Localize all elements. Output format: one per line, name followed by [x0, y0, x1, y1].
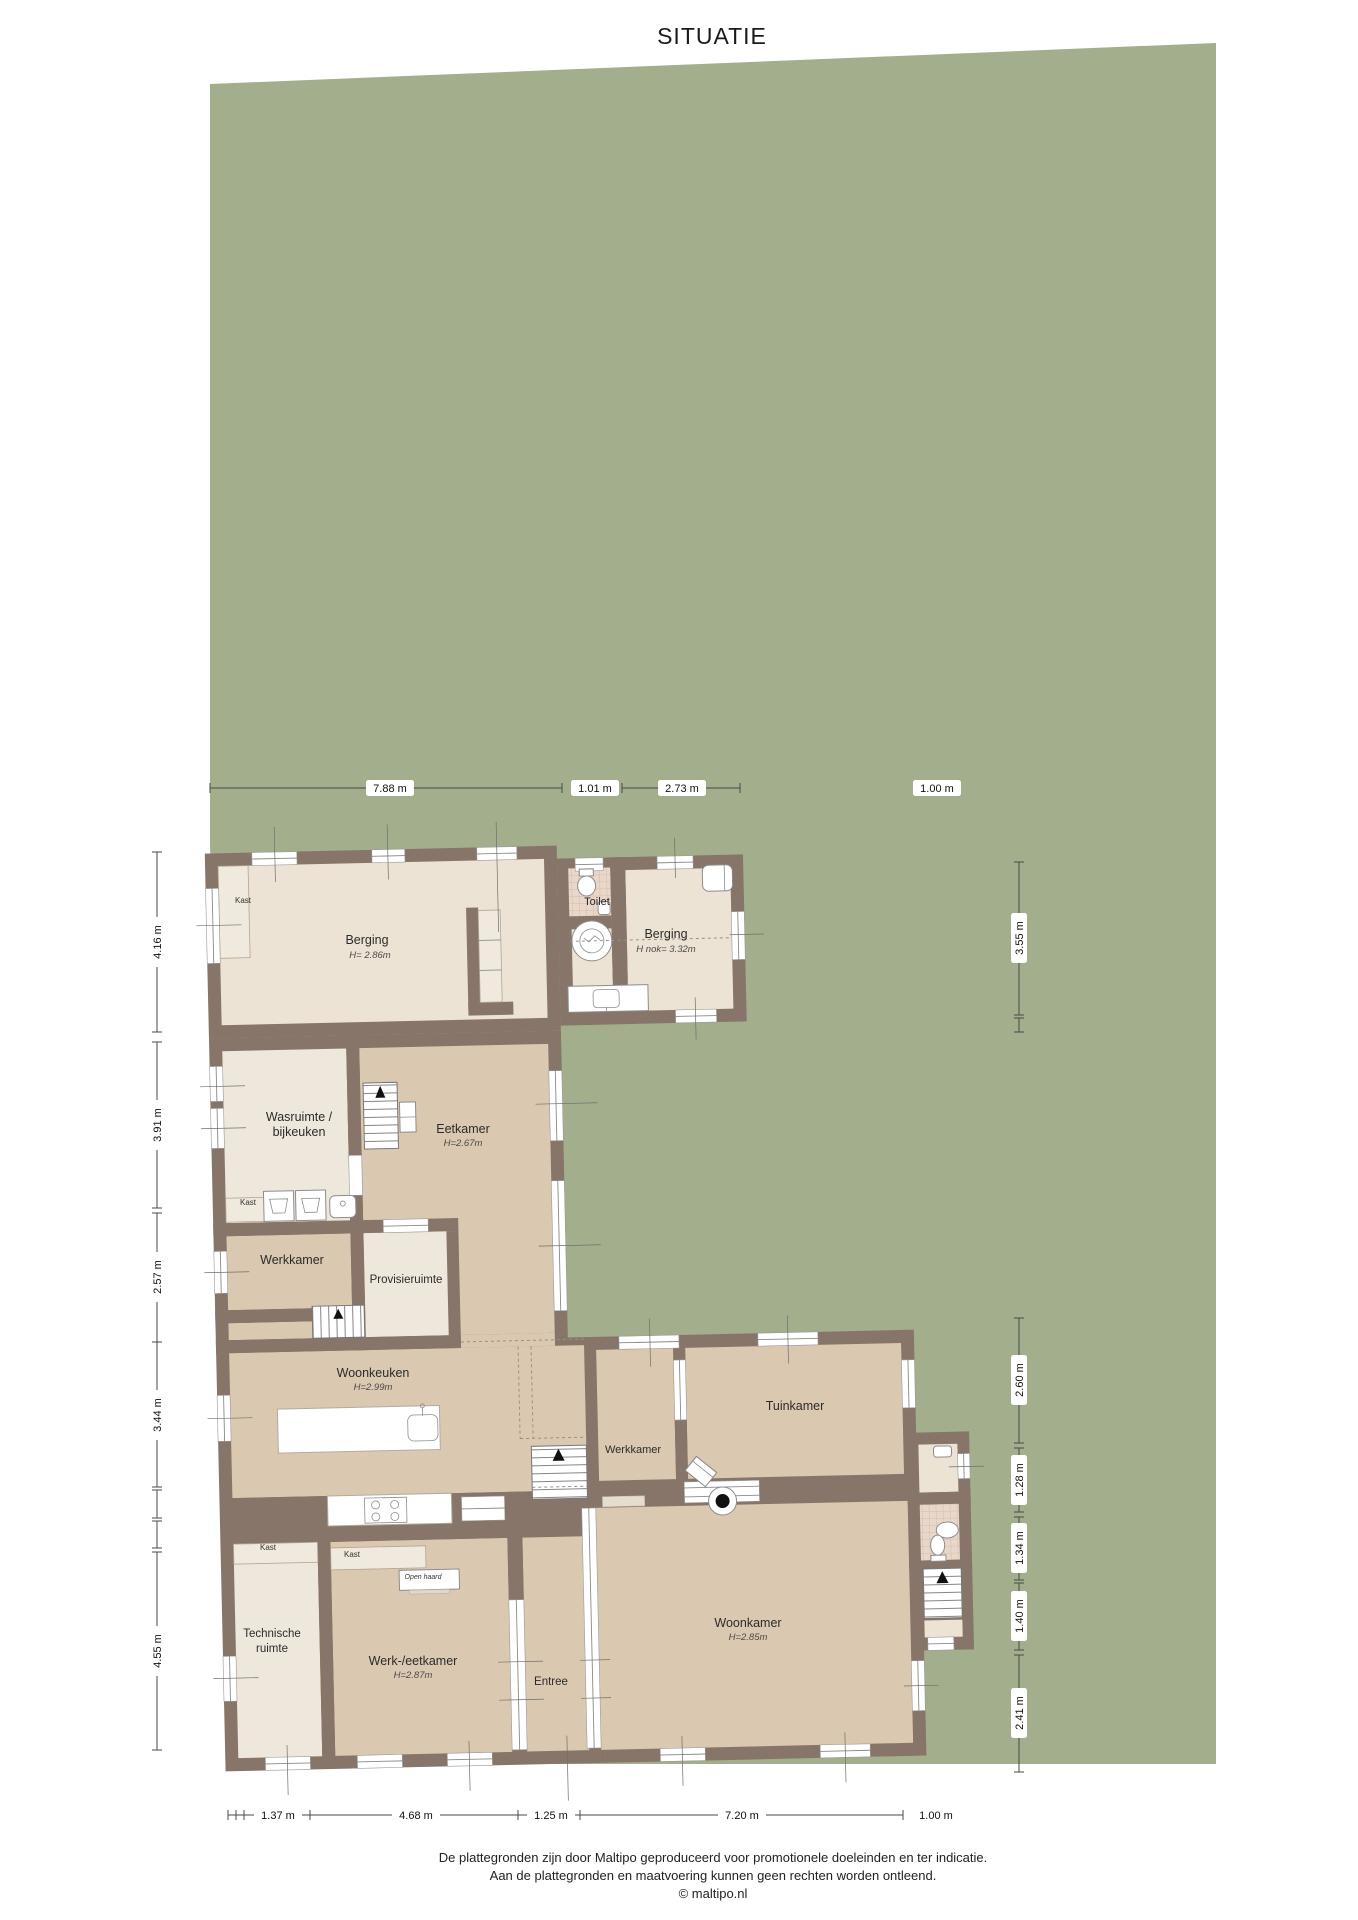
dim-left-2: 2.57 m: [152, 1260, 164, 1294]
dim-top-0: 7.88 m: [373, 783, 407, 795]
dim-left-4: 4.55 m: [152, 1634, 164, 1668]
footer: De plattegronden zijn door Maltipo gepro…: [439, 1850, 988, 1901]
label-wasruimte-2: bijkeuken: [273, 1125, 326, 1139]
label-kast-werk-eetkamer: Kast: [344, 1550, 361, 1559]
label-berging2: Berging: [644, 927, 687, 941]
dim-top-3: 1.00 m: [920, 783, 954, 795]
label-kast-wasruimte: Kast: [240, 1198, 257, 1207]
dim-right-1: 2.60 m: [1014, 1363, 1026, 1397]
label-berging2-h: H nok= 3.32m: [636, 944, 695, 955]
wall-berging-l2: [468, 1002, 513, 1016]
stairs-center: [531, 1445, 587, 1499]
dim-left-0: 4.16 m: [152, 925, 164, 959]
dim-right-2: 1.28 m: [1014, 1463, 1026, 1497]
label-eetkamer: Eetkamer: [436, 1122, 490, 1136]
footer-line-2: Aan de plattegronden en maatvoering kunn…: [490, 1868, 937, 1883]
wall-keuken-west: [232, 1496, 328, 1528]
label-kast-technische: Kast: [260, 1543, 277, 1552]
label-kast-berging: Kast: [235, 896, 252, 905]
stairs-woonkamer: [923, 1568, 962, 1619]
wall-passage-divider: [610, 857, 628, 979]
label-technische-2: ruimte: [256, 1643, 288, 1655]
floor-portaal: [924, 1620, 962, 1638]
label-werkkamer-links: Werkkamer: [260, 1253, 324, 1267]
label-provisieruimte: Provisieruimte: [370, 1274, 443, 1286]
wall-provisie-east: [446, 1231, 460, 1335]
dim-top-2: 2.73 m: [665, 783, 699, 795]
kitchen-island: [277, 1403, 440, 1453]
floor-entree: [522, 1536, 589, 1751]
kitchen-counter-cooktop: [327, 1493, 452, 1526]
label-woonkeuken: Woonkeuken: [337, 1366, 410, 1380]
label-woonkeuken-h: H=2.99m: [354, 1382, 393, 1393]
floorplan-canvas: SITUATIE: [0, 0, 1358, 1920]
dim-bottom-4: 1.00 m: [919, 1810, 953, 1822]
label-woonkamer-h: H=2.85m: [729, 1632, 768, 1643]
label-toilet: Toilet: [584, 896, 610, 908]
dim-left-3: 3.44 m: [152, 1398, 164, 1432]
label-woonkamer: Woonkamer: [714, 1616, 781, 1630]
floor-hal: [228, 1321, 312, 1340]
dim-bottom-0: 1.37 m: [261, 1810, 295, 1822]
berging-counter-sink: [568, 985, 649, 1013]
label-open-haard: Open haard: [405, 1574, 443, 1581]
floor-werkkamer-midden: [596, 1348, 676, 1481]
dim-right-0: 3.55 m: [1014, 921, 1026, 955]
kast-berging: [218, 866, 250, 959]
label-berging1: Berging: [345, 933, 388, 947]
dim-right-5: 2.41 m: [1014, 1696, 1026, 1730]
dim-top-1: 1.01 m: [578, 783, 612, 795]
dim-left-1: 3.91 m: [152, 1108, 164, 1142]
dim-bottom-3: 7.20 m: [725, 1810, 759, 1822]
label-berging1-h: H= 2.86m: [349, 950, 391, 961]
dim-bottom-2: 1.25 m: [534, 1810, 568, 1822]
label-entree: Entree: [534, 1676, 568, 1688]
situatie-floorplan-page: SITUATIE: [0, 0, 1358, 1920]
label-eetkamer-h: H=2.67m: [444, 1138, 483, 1149]
label-werk-eetkamer-h: H=2.87m: [394, 1670, 433, 1681]
stairs-hal: [312, 1305, 365, 1338]
page-title: SITUATIE: [657, 23, 767, 49]
footer-line-1: De plattegronden zijn door Maltipo gepro…: [439, 1850, 988, 1865]
dim-right-4: 1.40 m: [1014, 1599, 1026, 1633]
wall-protrusion-1: [907, 1491, 970, 1504]
label-technische-1: Technische: [243, 1628, 301, 1640]
wall-hal-north: [215, 1308, 312, 1323]
footer-copyright: © maltipo.nl: [679, 1886, 748, 1901]
sideboard: [602, 1496, 644, 1507]
dim-right-3: 1.34 m: [1014, 1531, 1026, 1565]
label-werk-eetkamer: Werk-/eetkamer: [369, 1654, 458, 1668]
label-wasruimte-1: Wasruimte /: [266, 1110, 333, 1124]
berging2-door: [702, 865, 733, 892]
label-werkkamer-midden: Werkkamer: [605, 1444, 661, 1456]
label-tuinkamer: Tuinkamer: [766, 1399, 825, 1413]
wall-werk-entree: [507, 1538, 523, 1600]
stove-icon: [708, 1487, 737, 1516]
dim-bottom-1: 4.68 m: [399, 1810, 433, 1822]
